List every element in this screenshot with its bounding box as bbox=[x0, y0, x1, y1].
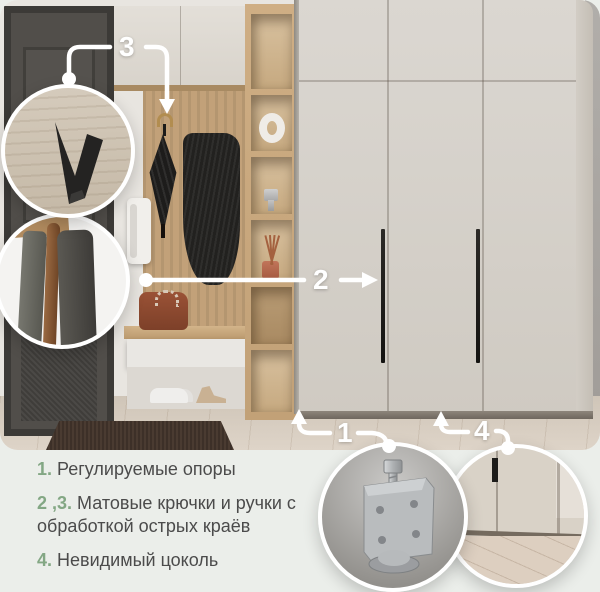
feature-number: 4. bbox=[37, 550, 52, 570]
donut-vase bbox=[259, 113, 285, 143]
robot-figurine bbox=[264, 189, 278, 201]
feature-text: Регулируемые опоры bbox=[57, 459, 236, 479]
inset-hook-detail bbox=[1, 84, 135, 218]
shelf-compartment bbox=[251, 14, 292, 89]
floor-detail bbox=[448, 536, 588, 588]
infographic-card: 1 2 3 4 1.Регулируемые опоры 2 ,3.Матовы… bbox=[0, 0, 600, 592]
umbrella-rod bbox=[163, 124, 166, 136]
callout-number-1: 1 bbox=[337, 417, 352, 449]
wardrobe-handle bbox=[476, 229, 480, 363]
cabinet-seam bbox=[299, 80, 578, 82]
wardrobe-handle bbox=[381, 229, 385, 363]
feature-text: Матовые крючки и ручки с обработкой остр… bbox=[37, 493, 296, 536]
wardrobe bbox=[299, 0, 578, 418]
shelf-compartment bbox=[251, 220, 292, 281]
callout-number-4: 4 bbox=[474, 415, 489, 447]
umbrella-tip bbox=[161, 224, 165, 238]
door-seam bbox=[387, 0, 389, 418]
door-seam bbox=[482, 0, 484, 418]
intercom-handset bbox=[130, 204, 137, 258]
adjustable-foot-shape bbox=[322, 446, 464, 588]
bench-drawer bbox=[127, 339, 245, 367]
inset-panel-edge-detail bbox=[0, 213, 130, 349]
panel-sample-dark bbox=[57, 229, 97, 349]
callout-number-3: 3 bbox=[119, 31, 134, 63]
feature-number: 2 ,3. bbox=[37, 493, 72, 513]
doormat-rug bbox=[46, 421, 234, 450]
feature-item-hooks-handles: 2 ,3.Матовые крючки и ручки с обработкой… bbox=[37, 492, 333, 538]
inset-adjustable-foot-detail bbox=[318, 442, 468, 592]
sneakers bbox=[150, 388, 188, 403]
reed-diffuser bbox=[262, 261, 279, 279]
side-panel-edge bbox=[557, 448, 560, 540]
handle-tip bbox=[492, 458, 498, 482]
shelf-compartment bbox=[251, 350, 292, 412]
shelf-compartment bbox=[251, 95, 292, 151]
feature-item-plinth: 4.Невидимый цоколь bbox=[37, 549, 333, 572]
open-shelf-column bbox=[245, 4, 298, 420]
feature-list: 1.Регулируемые опоры 2 ,3.Матовые крючки… bbox=[37, 458, 333, 583]
shelf-compartment bbox=[251, 287, 292, 344]
feature-text: Невидимый цоколь bbox=[57, 550, 218, 570]
wardrobe-side-panel bbox=[576, 0, 593, 414]
feature-number: 1. bbox=[37, 459, 52, 479]
hanging-coat bbox=[183, 133, 240, 285]
handbag bbox=[139, 292, 188, 330]
callout-number-2: 2 bbox=[313, 264, 328, 296]
matte-hook-shape bbox=[5, 88, 131, 214]
shelf-compartment bbox=[251, 157, 292, 214]
wall-corner bbox=[556, 448, 584, 518]
feature-item-supports: 1.Регулируемые опоры bbox=[37, 458, 333, 481]
